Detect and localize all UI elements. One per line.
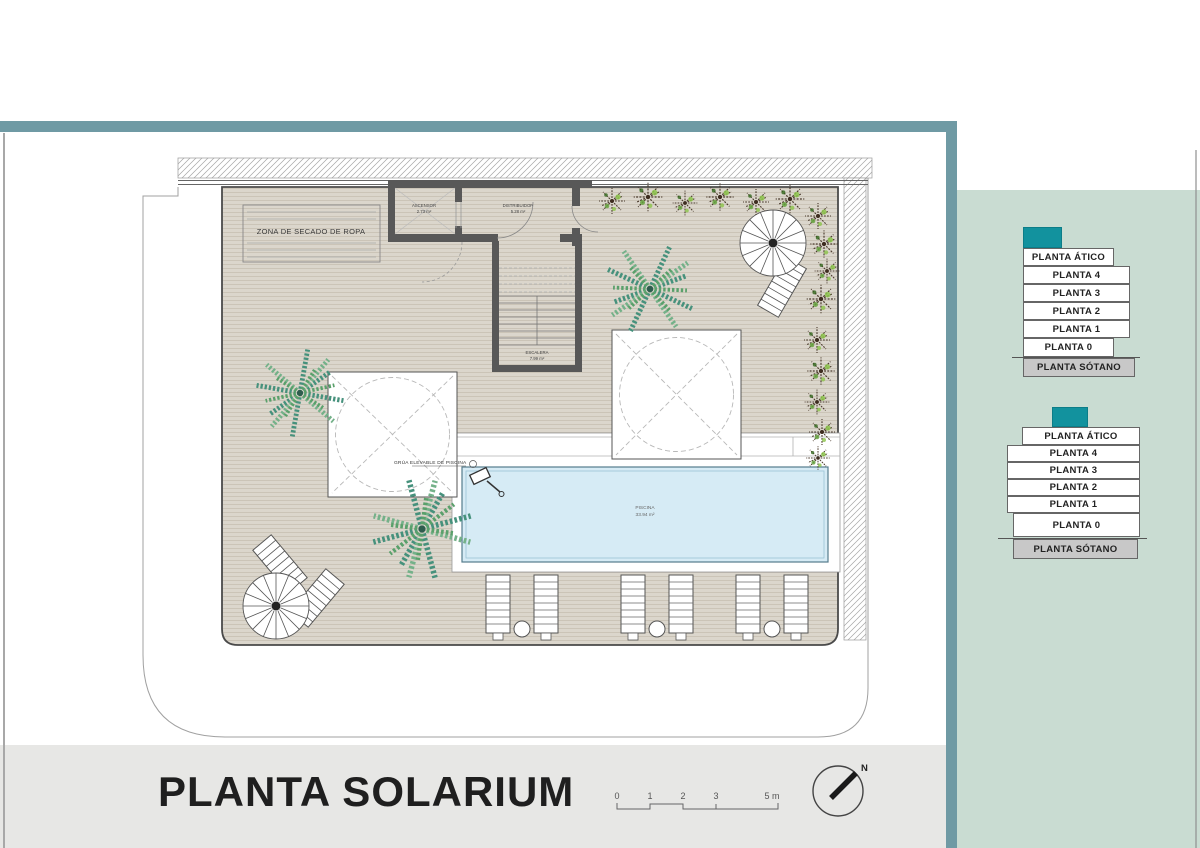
stack2-level-sotano: PLANTA SÓTANO	[1013, 539, 1138, 559]
pergola-left	[328, 372, 457, 497]
stack1-level-2: PLANTA 2	[1023, 302, 1130, 320]
pool-area: 33.94 m²	[636, 512, 655, 518]
pool: PISCINA 33.94 m²	[462, 467, 828, 562]
stairs-name: ESCALERA	[526, 350, 549, 355]
window-edge-line	[1195, 150, 1197, 848]
page: { "plan": { "zona": "ZONA DE SECADO DE R…	[0, 0, 1200, 848]
stack2-level-0: PLANTA 0	[1013, 513, 1140, 537]
hall-area: 5.28 m²	[511, 209, 526, 214]
stack1-level-atico: PLANTA ÁTICO	[1023, 248, 1114, 266]
stack1-solarium-marker	[1023, 227, 1062, 248]
stack1-level-4: PLANTA 4	[1023, 266, 1130, 284]
stack2-level-atico: PLANTA ÁTICO	[1022, 427, 1140, 445]
stack1-level-1: PLANTA 1	[1023, 320, 1130, 338]
elevator-name: ASCENSOR	[412, 203, 436, 208]
stack2-level-2: PLANTA 2	[1007, 479, 1140, 496]
stack2-level-4: PLANTA 4	[1007, 445, 1140, 462]
stack1-level-0: PLANTA 0	[1023, 338, 1114, 357]
svg-text:5 m: 5 m	[764, 791, 779, 801]
stairs-area: 7.99 m²	[530, 356, 545, 361]
stack1-level-3: PLANTA 3	[1023, 284, 1130, 302]
page-title: PLANTA SOLARIUM	[158, 768, 574, 816]
north-arrow: N	[813, 763, 868, 816]
stack2-level-1: PLANTA 1	[1007, 496, 1140, 513]
stack2-level-3: PLANTA 3	[1007, 462, 1140, 479]
stack1-level-sotano: PLANTA SÓTANO	[1023, 358, 1135, 377]
scale-bar: 0 1 2 3 5 m	[614, 791, 779, 809]
svg-text:1: 1	[647, 791, 652, 801]
pool-name: PISCINA	[635, 505, 655, 511]
elevator-area: 2.73 m²	[417, 209, 432, 214]
pool-hoist-label: GRÚA ELEVABLE DE PISCINA	[394, 459, 467, 466]
floor-plan-drawing: ZONA DE SECADO DE ROPA PISCINA 33.94 m² …	[0, 0, 948, 848]
svg-text:2: 2	[680, 791, 685, 801]
stack2-solarium-marker	[1052, 407, 1088, 427]
hall-name: DISTRIBUIDOR	[503, 203, 534, 208]
svg-text:0: 0	[614, 791, 619, 801]
svg-text:3: 3	[713, 791, 718, 801]
pergola-right	[612, 330, 741, 459]
drying-zone-label: ZONA DE SECADO DE ROPA	[257, 227, 366, 236]
north-label: N	[861, 763, 868, 774]
